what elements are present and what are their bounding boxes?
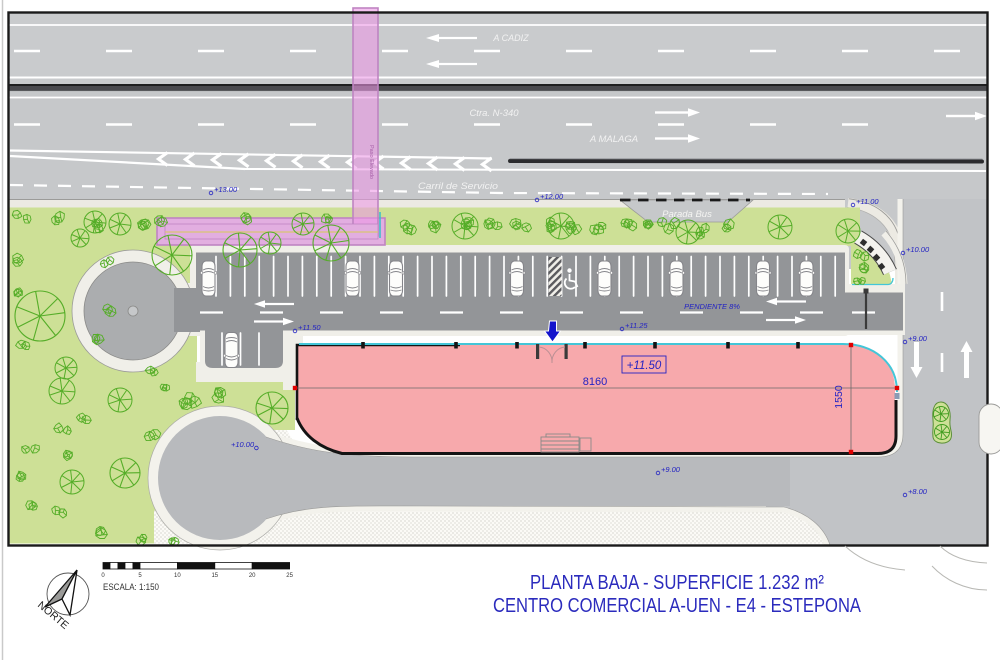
svg-text:+11.00: +11.00 — [856, 197, 879, 206]
svg-text:A MALAGA: A MALAGA — [589, 134, 638, 145]
svg-text:20: 20 — [249, 573, 256, 579]
svg-text:+9.00: +9.00 — [908, 334, 928, 343]
svg-text:Ctra. N-340: Ctra. N-340 — [469, 108, 519, 119]
svg-text:PLANTA BAJA - SUPERFICIE 1.232: PLANTA BAJA - SUPERFICIE 1.232 m² — [530, 572, 824, 594]
svg-text:Paso Elevado: Paso Elevado — [368, 145, 374, 179]
svg-text:+11.25: +11.25 — [625, 321, 648, 330]
svg-text:ESCALA: 1:150: ESCALA: 1:150 — [103, 582, 159, 593]
svg-text:25: 25 — [286, 573, 293, 579]
svg-text:+10.00: +10.00 — [231, 440, 255, 449]
svg-text:1550: 1550 — [833, 385, 845, 409]
svg-text:+8.00: +8.00 — [908, 487, 928, 496]
svg-text:+10.00: +10.00 — [906, 245, 930, 254]
svg-text:PENDIENTE 8%: PENDIENTE 8% — [684, 302, 740, 311]
svg-text:10: 10 — [174, 573, 181, 579]
svg-text:+11.50: +11.50 — [627, 360, 662, 372]
svg-text:Carril de Servicio: Carril de Servicio — [418, 181, 498, 192]
svg-text:8160: 8160 — [583, 376, 607, 388]
svg-text:CENTRO COMERCIAL A-UEN - E4 -: CENTRO COMERCIAL A-UEN - E4 - ESTEPONA — [493, 595, 862, 617]
svg-text:+11.50: +11.50 — [298, 323, 321, 332]
svg-text:+13.00: +13.00 — [214, 185, 238, 194]
svg-text:15: 15 — [211, 573, 218, 579]
svg-text:+12.00: +12.00 — [540, 192, 564, 201]
svg-text:+9.00: +9.00 — [661, 465, 681, 474]
svg-text:Parada Bus: Parada Bus — [662, 209, 712, 220]
svg-text:A CADIZ: A CADIZ — [492, 33, 529, 43]
